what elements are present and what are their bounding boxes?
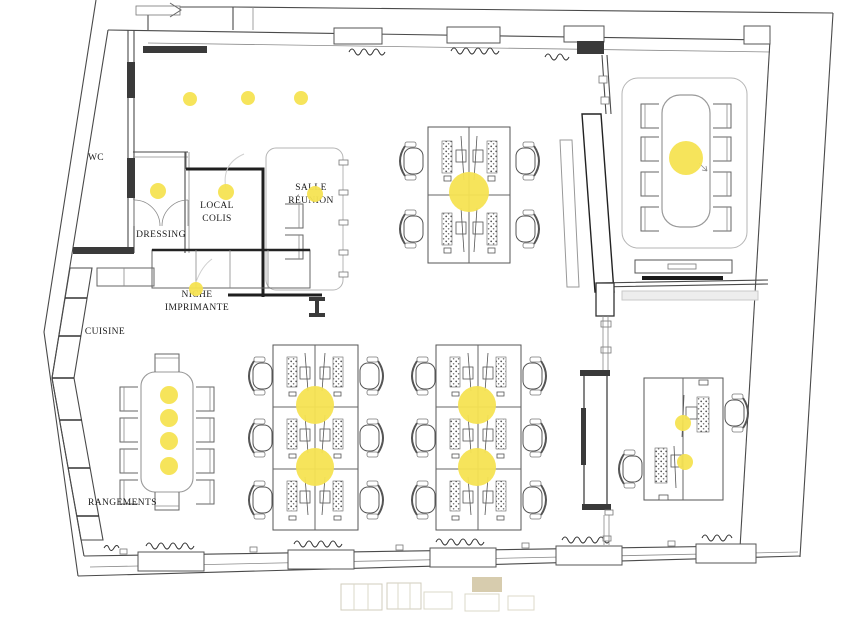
label-local: LOCAL — [200, 201, 234, 211]
meeting-chair — [641, 172, 659, 196]
ceiling-light — [160, 386, 178, 404]
wc-room — [73, 30, 135, 254]
ceiling-light — [183, 92, 197, 106]
ceiling-light — [160, 457, 178, 475]
ceiling-light — [218, 184, 234, 200]
duo-desk-group — [619, 378, 748, 500]
ceiling-light — [294, 91, 308, 105]
meeting-chair — [641, 137, 659, 161]
side-chair — [120, 387, 138, 411]
meeting-chair — [713, 207, 731, 231]
office-chair — [249, 419, 272, 457]
side-chair — [120, 449, 138, 473]
tv-screen — [642, 276, 723, 280]
office-chair — [400, 210, 423, 248]
ceiling-light — [675, 415, 691, 431]
ceiling-light — [160, 409, 178, 427]
meeting-room — [560, 55, 768, 353]
office-chair — [249, 357, 272, 395]
side-chair — [196, 449, 214, 473]
label-cuisine: CUISINE — [85, 327, 125, 337]
left-desk-cluster — [249, 345, 383, 530]
partition-wall — [582, 114, 614, 292]
office-chair — [523, 419, 546, 457]
salle-reunion-lounge — [266, 148, 348, 317]
office-chair — [725, 394, 748, 432]
office-chair — [360, 357, 383, 395]
label-rangements: RANGEMENTS — [88, 498, 157, 508]
side-chair — [196, 418, 214, 442]
glass-partition — [580, 316, 613, 545]
office-chair — [400, 142, 423, 180]
side-chair — [196, 480, 214, 504]
office-chair — [412, 357, 435, 395]
floor-plan-drawing: WC DRESSING LOCAL COLIS SALLE RÉUNION NI… — [0, 0, 850, 617]
office-chair — [619, 450, 642, 488]
ceiling-light — [189, 282, 203, 296]
armchair — [285, 204, 303, 228]
office-chair — [516, 210, 539, 248]
entry-radiator — [143, 46, 207, 53]
office-chair — [523, 357, 546, 395]
meeting-chair — [641, 207, 659, 231]
ceiling-light — [669, 141, 703, 175]
entry-door — [136, 6, 180, 15]
office-chair — [360, 481, 383, 519]
meeting-chair — [713, 137, 731, 161]
niche-imprimante-counter — [152, 250, 310, 288]
ceiling-light — [241, 91, 255, 105]
ceiling-light — [296, 448, 334, 486]
partition-panel — [584, 374, 607, 506]
ceiling-light — [296, 386, 334, 424]
office-chair — [412, 481, 435, 519]
meeting-chair — [641, 104, 659, 128]
steel-column-icon — [309, 297, 325, 317]
meeting-chair — [713, 172, 731, 196]
door-arc — [134, 200, 160, 226]
right-desk-cluster — [412, 345, 546, 530]
ceiling-light — [150, 183, 166, 199]
side-chair — [155, 492, 179, 510]
faded-stamp — [341, 577, 534, 611]
label-wc: WC — [88, 153, 104, 163]
floor-plan-page: WC DRESSING LOCAL COLIS SALLE RÉUNION NI… — [0, 0, 850, 617]
ceiling-light — [449, 172, 489, 212]
door-arc — [162, 200, 188, 226]
armchair — [285, 235, 303, 259]
label-dressing: DRESSING — [136, 230, 186, 240]
office-chair — [249, 481, 272, 519]
ceiling-light — [458, 448, 496, 486]
label-colis: COLIS — [202, 214, 231, 224]
office-chair — [523, 481, 546, 519]
office-chair — [516, 142, 539, 180]
top-right-wall-notch — [744, 26, 770, 44]
side-chair — [155, 354, 179, 372]
ceiling-light — [307, 186, 323, 202]
side-chair — [120, 418, 138, 442]
kitchen-counter — [97, 268, 154, 286]
ceiling-light — [458, 386, 496, 424]
office-chair — [360, 419, 383, 457]
ceiling-light — [677, 454, 693, 470]
ceiling-light — [160, 432, 178, 450]
kitchen-table-group — [120, 354, 214, 510]
local-colis-room — [186, 152, 322, 297]
side-chair — [196, 387, 214, 411]
meeting-chair — [713, 104, 731, 128]
whiteboard-panel — [560, 140, 579, 287]
office-chair — [412, 419, 435, 457]
label-imprimante: IMPRIMANTE — [165, 303, 229, 313]
